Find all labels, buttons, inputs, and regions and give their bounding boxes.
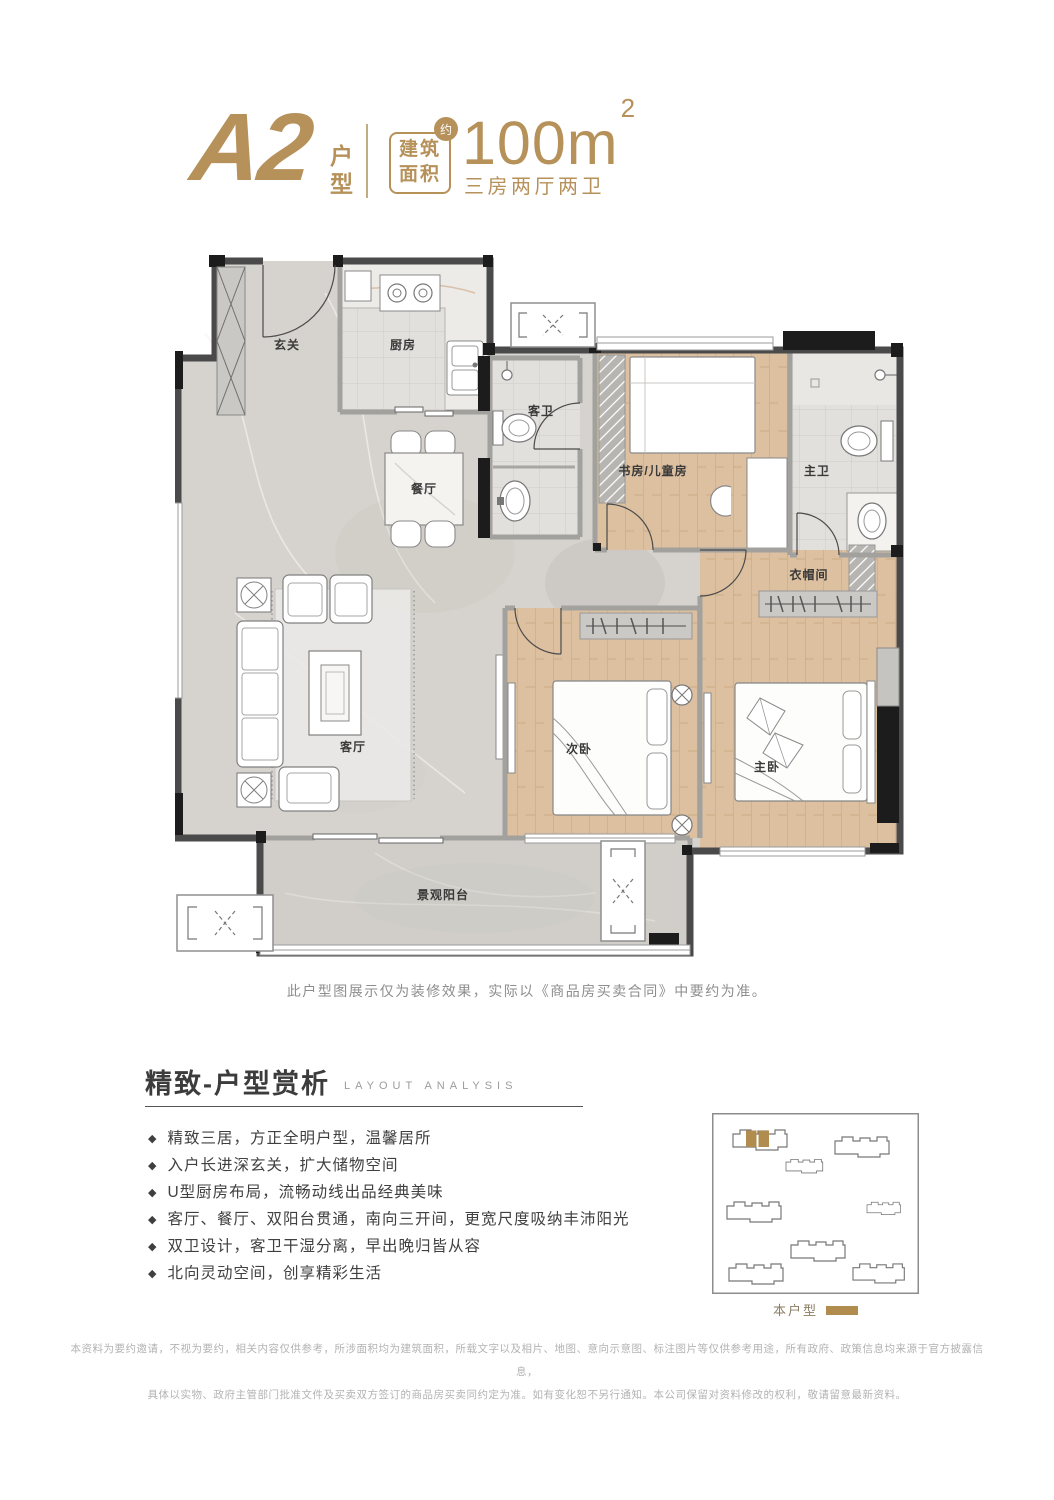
washbasin-icon xyxy=(500,481,530,521)
section-title: 精致-户型赏析LAYOUT ANALYSIS xyxy=(145,1062,517,1101)
diamond-bullet-icon: ◆ xyxy=(148,1133,157,1145)
pillow xyxy=(843,691,861,739)
bullet-text: 精致三居，方正全明户型，温馨居所 xyxy=(167,1130,431,1147)
bullet-text: 北向灵动空间，创享精彩生活 xyxy=(167,1265,382,1282)
ac-unit-top xyxy=(511,303,595,347)
plan-caption: 此户型图展示仅为装修效果，实际以《商品房买卖合同》中要约为准。 xyxy=(0,981,1054,1001)
unit-suffix: 户型 xyxy=(326,144,352,200)
ac-unit-bottom-right xyxy=(601,841,645,941)
unit-code: A2 xyxy=(187,100,316,196)
pillow xyxy=(843,745,861,793)
analysis-bullet: ◆入户长进深玄关，扩大储物空间 xyxy=(148,1153,629,1170)
shaft-gray xyxy=(877,648,899,706)
pillow xyxy=(647,753,667,809)
sliding-door xyxy=(395,407,423,412)
armchair xyxy=(279,767,339,811)
disclaimer: 本资料为要约邀请，不视为要约，相关内容仅供参考，所涉面积均为建筑面积，所载文字以… xyxy=(60,1338,994,1407)
analysis-bullet: ◆双卫设计，客卫干湿分离，早出晚归皆从容 xyxy=(148,1234,629,1251)
siteplan-legend: 本户型 xyxy=(712,1300,919,1319)
sliding-door xyxy=(425,411,453,416)
diamond-bullet-icon: ◆ xyxy=(148,1268,157,1280)
bullet-text: U型厨房布局，流畅动线出品经典美味 xyxy=(167,1184,443,1201)
room-label-second-bedroom: 次卧 xyxy=(566,741,592,756)
bullet-text: 入户长进深玄关，扩大储物空间 xyxy=(167,1157,398,1174)
chair xyxy=(391,521,421,547)
room-label-kitchen: 厨房 xyxy=(390,337,416,352)
room-label-master-bedroom: 主卧 xyxy=(754,759,780,774)
room-label-living: 客厅 xyxy=(339,739,366,754)
area-box-line2: 面积 xyxy=(399,163,441,188)
room-label-dining: 餐厅 xyxy=(411,481,437,496)
bullet-text: 客厅、餐厅、双阳台贯通，南向三开间，更宽尺度吸纳丰沛阳光 xyxy=(167,1211,629,1228)
legend-label: 本户型 xyxy=(773,1303,818,1318)
study-bed xyxy=(630,357,755,453)
washbasin-icon xyxy=(858,503,886,539)
section-title-en: LAYOUT ANALYSIS xyxy=(344,1080,517,1092)
header-divider xyxy=(366,124,368,198)
analysis-bullet: ◆精致三居，方正全明户型，温馨居所 xyxy=(148,1126,629,1143)
stove-icon xyxy=(380,275,440,311)
room-label-entry: 玄关 xyxy=(274,337,300,352)
diamond-bullet-icon: ◆ xyxy=(148,1160,157,1172)
analysis-bullet: ◆北向灵动空间，创享精彩生活 xyxy=(148,1261,629,1278)
room-label-guest-bath: 客卫 xyxy=(527,403,554,418)
analysis-bullet: ◆U型厨房布局，流畅动线出品经典美味 xyxy=(148,1180,629,1197)
ac-unit-bottom-left xyxy=(177,895,273,951)
legend-gold-swatch xyxy=(826,1306,858,1315)
floor-plan: 玄关 厨房 客卫 书房/儿童房 主卫 餐厅 衣帽间 客厅 次卧 主卧 景观阳台 xyxy=(175,253,907,965)
sliding-door xyxy=(379,838,443,843)
sofa-long xyxy=(237,621,283,767)
entry-shaft xyxy=(217,267,245,415)
disclaimer-line2: 具体以实物、政府主管部门批准文件及买卖双方签订的商品房买卖同约定为准。如有变化恕… xyxy=(60,1384,994,1407)
building-area-box: 建筑 面积 xyxy=(389,132,451,194)
room-label-study: 书房/儿童房 xyxy=(618,463,687,478)
diamond-bullet-icon: ◆ xyxy=(148,1214,157,1226)
closet-hatch xyxy=(599,355,625,503)
headboard xyxy=(867,681,875,803)
room-label-balcony: 景观阳台 xyxy=(417,887,469,902)
pillow xyxy=(647,689,667,745)
chair xyxy=(425,521,455,547)
section-title-cn: 精致-户型赏析 xyxy=(145,1069,330,1099)
floorplan-page: A2 户型 建筑 面积 约 100m2 三房两厅两卫 xyxy=(0,0,1054,1500)
approx-badge: 约 xyxy=(434,117,458,141)
diamond-bullet-icon: ◆ xyxy=(148,1187,157,1199)
analysis-bullet: ◆客厅、餐厅、双阳台贯通，南向三开间，更宽尺度吸纳丰沛阳光 xyxy=(148,1207,629,1224)
area-box-line1: 建筑 xyxy=(399,138,441,163)
diamond-bullet-icon: ◆ xyxy=(148,1241,157,1253)
analysis-bullet-list: ◆精致三居，方正全明户型，温馨居所 ◆入户长进深玄关，扩大储物空间 ◆U型厨房布… xyxy=(148,1126,629,1288)
site-plan xyxy=(712,1113,919,1294)
section-rule xyxy=(145,1106,583,1107)
layout-description: 三房两厅两卫 xyxy=(464,170,605,199)
room-label-cloakroom: 衣帽间 xyxy=(789,567,828,582)
sliding-door xyxy=(313,834,377,839)
study-desk xyxy=(747,458,787,548)
building-highlighted xyxy=(733,1130,787,1150)
toilet-icon xyxy=(881,421,893,461)
room-label-master-bath: 主卫 xyxy=(804,463,830,478)
disclaimer-line1: 本资料为要约邀请，不视为要约，相关内容仅供参考，所涉面积均为建筑面积，所载文字以… xyxy=(60,1338,994,1384)
area-value: 100m2 xyxy=(462,108,636,178)
area-superscript: 2 xyxy=(621,93,636,123)
bullet-text: 双卫设计，客卫干湿分离，早出晚归皆从容 xyxy=(167,1238,481,1255)
